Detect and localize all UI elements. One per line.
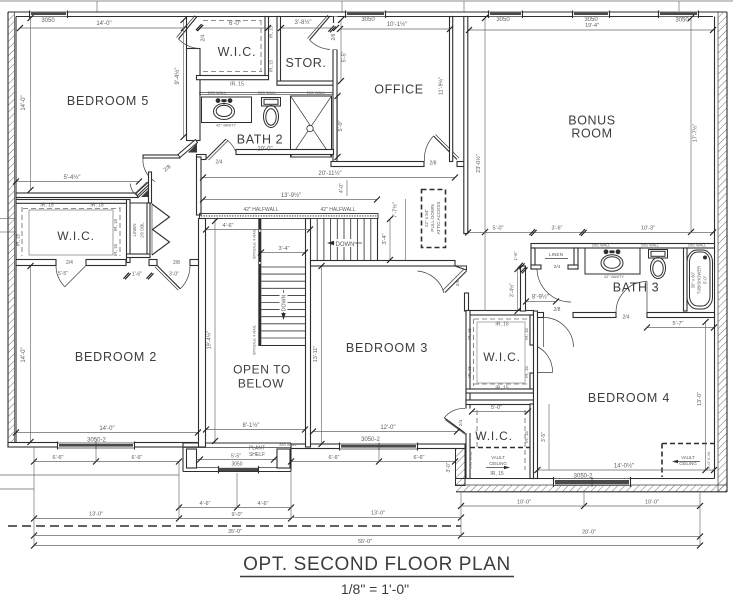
svg-text:IR, 15: IR, 15 [524, 366, 529, 378]
svg-text:20'-0": 20'-0" [582, 530, 596, 536]
svg-text:OPEN TO: OPEN TO [233, 363, 291, 377]
svg-text:TUB/SHOWER: TUB/SHOWER [697, 266, 702, 294]
svg-text:2/4: 2/4 [554, 264, 561, 270]
svg-text:19'-4½": 19'-4½" [206, 331, 213, 350]
svg-text:5'-0" K.W.: 5'-0" K.W. [706, 451, 711, 469]
svg-text:20G WALL: 20G WALL [592, 244, 610, 248]
svg-text:2/4: 2/4 [216, 160, 223, 166]
svg-text:6'-6": 6'-6" [132, 455, 143, 461]
svg-text:2/4: 2/4 [458, 419, 464, 426]
svg-text:1'-6": 1'-6" [513, 251, 518, 261]
svg-text:IR, 15: IR, 15 [467, 366, 472, 378]
svg-text:8'-1½": 8'-1½" [243, 422, 260, 429]
svg-text:1/8" = 1'-0": 1/8" = 1'-0" [341, 581, 409, 597]
svg-text:13'-9½": 13'-9½" [281, 192, 301, 199]
svg-text:14'-0½": 14'-0½" [614, 463, 634, 470]
svg-text:3'-4½": 3'-4½" [509, 283, 516, 297]
svg-text:VAULT: VAULT [491, 455, 505, 460]
svg-text:5'-4½": 5'-4½" [64, 174, 81, 181]
svg-text:5'-0": 5'-0" [703, 275, 708, 284]
svg-text:14'-0": 14'-0" [96, 21, 111, 27]
svg-text:IR, 15: IR, 15 [16, 233, 21, 246]
svg-text:2/8: 2/8 [173, 260, 180, 266]
svg-text:BEDROOM 4: BEDROOM 4 [588, 391, 670, 405]
svg-text:5'-5": 5'-5" [58, 271, 68, 277]
svg-text:2/8: 2/8 [455, 279, 461, 286]
svg-text:3050: 3050 [361, 17, 375, 23]
svg-text:W.I.C.: W.I.C. [218, 45, 257, 59]
svg-text:W.I.C.: W.I.C. [57, 229, 94, 243]
svg-text:3050-2: 3050-2 [574, 474, 593, 480]
svg-text:DOWN: DOWN [282, 295, 288, 312]
svg-text:2/6: 2/6 [331, 33, 337, 40]
svg-text:5'-0": 5'-0" [491, 405, 502, 411]
svg-text:55'-0": 55'-0" [358, 539, 372, 545]
svg-text:9'-4½": 9'-4½" [174, 68, 181, 85]
svg-text:3050: 3050 [231, 462, 242, 468]
svg-text:7'-7½": 7'-7½" [392, 202, 399, 218]
svg-text:4'-0": 4'-0" [339, 183, 345, 193]
svg-text:IR, 15: IR, 15 [490, 471, 504, 477]
svg-text:4'-6": 4'-6" [258, 501, 269, 507]
svg-text:2/4: 2/4 [201, 34, 207, 41]
svg-text:23'-0½": 23'-0½" [475, 154, 482, 173]
svg-text:DOWN: DOWN [336, 242, 355, 248]
svg-text:14'-0": 14'-0" [21, 95, 27, 110]
svg-text:5'-5": 5'-5" [342, 51, 348, 62]
svg-text:3'-4": 3'-4" [279, 246, 290, 252]
svg-text:IR, 15: IR, 15 [495, 386, 509, 392]
svg-text:10'-0": 10'-0" [517, 500, 531, 506]
svg-text:IR, 15: IR, 15 [90, 203, 104, 209]
svg-text:6'-0": 6'-0" [229, 21, 241, 27]
svg-text:9'-0": 9'-0" [232, 512, 243, 518]
svg-text:6'-6": 6'-6" [329, 455, 340, 461]
svg-text:IR, 15: IR, 15 [40, 203, 54, 209]
svg-text:13'-0": 13'-0" [89, 512, 103, 518]
svg-text:13'-0": 13'-0" [371, 511, 385, 517]
svg-text:SHELF: SHELF [249, 452, 265, 458]
svg-text:5'-0": 5'-0" [338, 120, 344, 131]
svg-text:20G WALL: 20G WALL [279, 443, 296, 447]
svg-text:5'-0": 5'-0" [493, 226, 504, 232]
svg-text:1'-6": 1'-6" [132, 272, 142, 278]
svg-text:2/4: 2/4 [66, 260, 73, 266]
svg-text:42" HALFWALL: 42" HALFWALL [244, 207, 279, 213]
svg-text:10'-0": 10'-0" [645, 500, 659, 506]
svg-text:ROOM: ROOM [571, 127, 612, 141]
svg-text:12'-0": 12'-0" [380, 425, 395, 431]
svg-text:4'-6": 4'-6" [200, 501, 211, 507]
svg-text:35'-0": 35'-0" [228, 529, 242, 535]
svg-text:BEDROOM 3: BEDROOM 3 [346, 341, 428, 355]
svg-text:IR, 15: IR, 15 [113, 218, 118, 231]
svg-text:OFFICE: OFFICE [374, 83, 423, 97]
svg-text:PULL DOWN: PULL DOWN [430, 204, 435, 231]
svg-text:20G WALL: 20G WALL [258, 91, 276, 95]
svg-text:BONUS: BONUS [568, 114, 615, 128]
svg-text:22" x 54": 22" x 54" [424, 208, 429, 227]
svg-text:SPINDLE 4 RAIL: SPINDLE 4 RAIL [252, 228, 257, 259]
svg-text:20G WALL: 20G WALL [307, 91, 325, 95]
svg-text:3'-5": 3'-5" [541, 432, 547, 442]
svg-text:8'-9½": 8'-9½" [532, 294, 549, 301]
svg-text:IR, 15: IR, 15 [113, 243, 118, 256]
svg-text:42" HALFWALL: 42" HALFWALL [321, 207, 356, 213]
svg-text:20'-11½": 20'-11½" [318, 170, 341, 177]
svg-text:OPT. SECOND FLOOR PLAN: OPT. SECOND FLOOR PLAN [243, 554, 511, 575]
svg-text:W.I.C.: W.I.C. [475, 429, 512, 443]
svg-text:CEILING: CEILING [489, 461, 507, 466]
svg-text:19'-4": 19'-4" [585, 23, 599, 29]
svg-text:IR, 15: IR, 15 [269, 59, 274, 72]
svg-text:20G WALL: 20G WALL [641, 244, 659, 248]
svg-text:5'-5": 5'-5" [231, 454, 241, 460]
svg-text:IR, 15: IR, 15 [524, 431, 529, 443]
svg-text:SPINDLE 4 RAIL: SPINDLE 4 RAIL [252, 324, 257, 355]
svg-text:BATH 2: BATH 2 [237, 133, 283, 147]
svg-text:10'-3": 10'-3" [641, 226, 655, 232]
svg-text:3'-8½": 3'-8½" [295, 19, 312, 26]
svg-text:2/4: 2/4 [623, 315, 630, 321]
svg-text:IR, 15: IR, 15 [495, 322, 509, 328]
svg-text:3050-2: 3050-2 [361, 437, 380, 443]
svg-text:BEDROOM 5: BEDROOM 5 [67, 94, 149, 108]
svg-text:4'-6": 4'-6" [223, 223, 234, 229]
svg-text:BATH 3: BATH 3 [613, 281, 659, 295]
svg-text:30" x 60": 30" x 60" [691, 271, 696, 288]
svg-text:3050: 3050 [675, 18, 689, 24]
svg-text:IR, 15: IR, 15 [524, 328, 529, 340]
svg-text:VAULT: VAULT [681, 455, 695, 460]
svg-text:3'-6": 3'-6" [552, 226, 563, 232]
svg-text:42" VANITY: 42" VANITY [604, 275, 625, 279]
svg-text:5'-0" K.W.: 5'-0" K.W. [468, 451, 473, 469]
svg-text:PLANT: PLANT [249, 446, 265, 452]
svg-text:LINEN: LINEN [132, 224, 137, 237]
svg-text:3050: 3050 [41, 18, 55, 24]
svg-text:2'0 DBL: 2'0 DBL [140, 222, 145, 238]
svg-text:10'-0": 10'-0" [257, 147, 272, 153]
svg-text:BEDROOM 2: BEDROOM 2 [75, 350, 157, 364]
svg-text:20G WALL: 20G WALL [208, 91, 226, 95]
svg-text:W.I.C.: W.I.C. [483, 350, 520, 364]
svg-text:2/8: 2/8 [554, 307, 561, 313]
svg-text:13'-11": 13'-11" [313, 346, 319, 363]
svg-text:2/8: 2/8 [430, 161, 437, 167]
svg-text:STOR.: STOR. [286, 56, 327, 70]
svg-text:ATTIC ACCESS: ATTIC ACCESS [436, 202, 441, 235]
svg-text:IR, 15: IR, 15 [467, 328, 472, 340]
svg-text:3050: 3050 [496, 17, 510, 23]
svg-text:13'-0": 13'-0" [697, 392, 703, 406]
svg-text:IR, 15: IR, 15 [230, 82, 244, 88]
svg-text:14'-0": 14'-0" [21, 347, 27, 362]
svg-text:BELOW: BELOW [238, 377, 284, 391]
svg-text:3'-4": 3'-4" [382, 233, 388, 244]
svg-text:6'-6": 6'-6" [53, 455, 64, 461]
svg-text:14'-0": 14'-0" [99, 426, 114, 432]
svg-text:5'-7": 5'-7" [673, 321, 684, 327]
svg-text:3050-2: 3050-2 [87, 438, 106, 444]
svg-text:17'-7½": 17'-7½" [692, 124, 699, 143]
svg-text:6'-6": 6'-6" [414, 455, 425, 461]
svg-text:20G WALL: 20G WALL [688, 244, 706, 248]
svg-text:42" VANITY: 42" VANITY [216, 124, 237, 128]
svg-text:11'-9½": 11'-9½" [438, 77, 445, 95]
svg-text:3'-0": 3'-0" [446, 462, 452, 472]
svg-text:3'-0": 3'-0" [169, 272, 179, 278]
svg-text:10'-1½": 10'-1½" [387, 21, 407, 28]
svg-text:LINEN: LINEN [549, 252, 564, 258]
